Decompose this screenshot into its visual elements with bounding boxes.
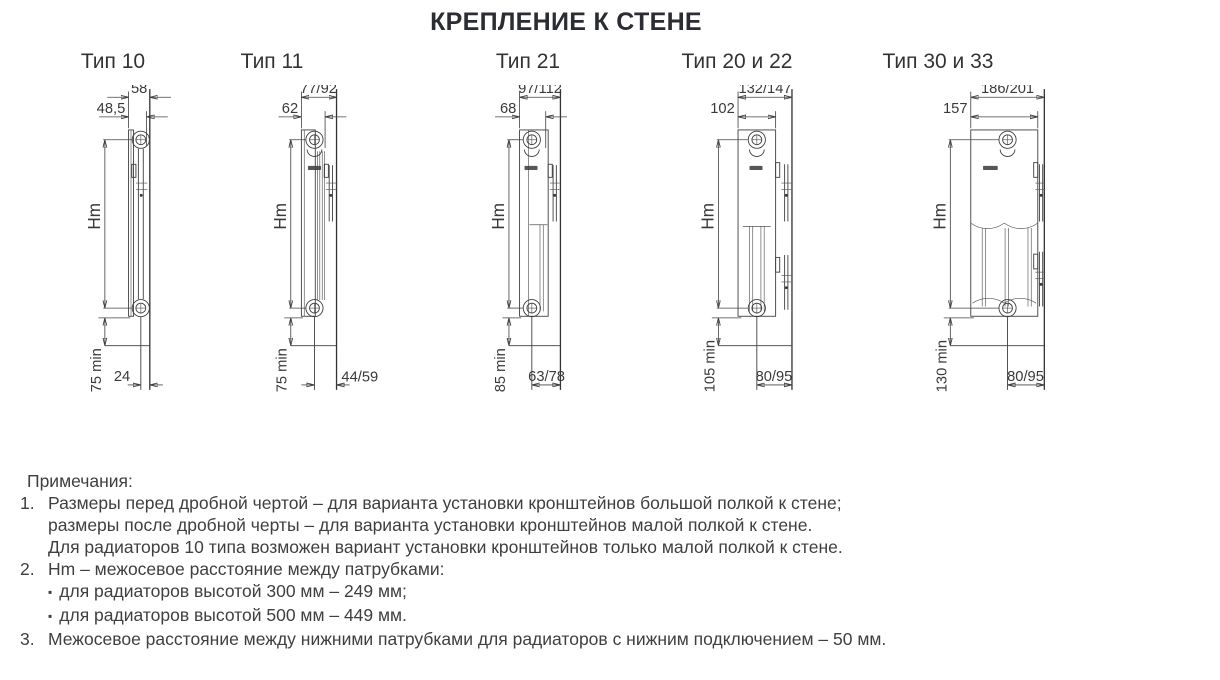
dim-axis-spacing: Hm xyxy=(84,203,104,230)
notes-section: Примечания: 1. Размеры перед дробной чер… xyxy=(20,470,1212,650)
diagram-tip3033: 186/201 157 Hm 130 min 80/95 xyxy=(890,85,1130,465)
note-number xyxy=(20,604,48,628)
dimensions: 97/112 68 Hm 85 min 63/78 xyxy=(488,85,567,392)
radiator xyxy=(738,130,791,390)
dim-pipe-to-wall: 63/78 xyxy=(528,369,565,385)
wall xyxy=(509,89,608,390)
mounting-diagram-page: КРЕПЛЕНИЕ К СТЕНЕ Тип 10 Тип 11 Тип 21 Т… xyxy=(0,0,1220,680)
dim-depth-to-wall: 58 xyxy=(131,85,147,97)
diagram-title-tip21: Тип 21 xyxy=(428,50,628,74)
dimensions: 132/147 102 Hm 105 min 80/95 xyxy=(698,85,793,392)
brand-logo xyxy=(308,166,321,170)
dim-depth-to-wall: 186/201 xyxy=(981,85,1034,97)
dim-floor-clearance: 75 min xyxy=(89,348,105,392)
diagram-title-tip2022: Тип 20 и 22 xyxy=(637,50,837,74)
diagram-tip10: 58 48,5 Hm 75 min 24 xyxy=(40,85,240,465)
wall xyxy=(105,89,197,390)
diagram-tip11: 77/92 62 Hm 75 min 44/59 xyxy=(230,85,430,465)
note-text: Размеры перед дробной чертой – для вариа… xyxy=(48,492,1212,514)
bullet-text: для радиаторов высотой 500 мм – 449 мм. xyxy=(59,605,407,625)
dim-pipe-to-wall: 80/95 xyxy=(756,369,793,385)
diagram-title-tip3033: Тип 30 и 33 xyxy=(838,50,1038,74)
dim-bracket-depth: 68 xyxy=(500,101,516,117)
dimensions: 58 48,5 Hm 75 min 24 xyxy=(84,85,171,392)
note-item-2: 2. Hm – межосевое расстояние между патру… xyxy=(20,558,1212,580)
diagram-title-tip11: Тип 11 xyxy=(172,50,372,74)
radiator xyxy=(129,130,150,390)
notes-header: Примечания: xyxy=(20,470,1212,492)
page-title: КРЕПЛЕНИЕ К СТЕНЕ xyxy=(0,8,1132,37)
note-item-1-line-1: 1. Размеры перед дробной чертой – для ва… xyxy=(20,492,1212,514)
dim-depth-to-wall: 132/147 xyxy=(738,85,791,97)
diagram-tip21: 97/112 68 Hm 85 min 63/78 xyxy=(440,85,640,465)
diagram-tip2022: 132/147 102 Hm 105 min 80/95 xyxy=(650,85,880,465)
dim-pipe-to-wall: 80/95 xyxy=(1007,369,1044,385)
dim-axis-spacing: Hm xyxy=(929,203,949,230)
dim-pipe-to-wall: 44/59 xyxy=(341,370,378,386)
brand-logo xyxy=(524,166,537,170)
note-item-3: 3. Межосевое расстояние между нижними па… xyxy=(20,628,1212,650)
bullet-icon: ▪ xyxy=(48,585,52,599)
dim-bracket-depth: 48,5 xyxy=(97,101,126,117)
radiator xyxy=(520,130,560,390)
dim-depth-to-wall: 97/112 xyxy=(518,85,562,97)
radiator xyxy=(971,130,1045,390)
wall xyxy=(291,89,384,390)
dim-axis-spacing: Hm xyxy=(698,203,718,230)
dim-axis-spacing: Hm xyxy=(488,203,508,230)
note-number: 2. xyxy=(20,558,48,580)
brand-logo xyxy=(749,166,762,170)
radiator xyxy=(301,130,337,390)
bullet-text: для радиаторов высотой 300 мм – 249 мм; xyxy=(59,581,407,601)
note-text: Hm – межосевое расстояние между патрубка… xyxy=(48,558,1212,580)
note-text: Межосевое расстояние между нижними патру… xyxy=(48,628,1212,650)
dim-depth-to-wall: 77/92 xyxy=(300,85,337,97)
note-text: ▪для радиаторов высотой 300 мм – 249 мм; xyxy=(48,580,1212,604)
note-number xyxy=(20,580,48,604)
dim-floor-clearance: 130 min xyxy=(934,340,950,392)
dim-pipe-to-wall: 24 xyxy=(114,369,130,385)
dim-floor-clearance: 85 min xyxy=(493,348,509,392)
note-item-2-bullet-2: ▪для радиаторов высотой 500 мм – 449 мм. xyxy=(20,604,1212,628)
wall xyxy=(718,89,842,390)
note-text: Для радиаторов 10 типа возможен вариант … xyxy=(48,536,1212,558)
note-item-2-bullet-1: ▪для радиаторов высотой 300 мм – 249 мм; xyxy=(20,580,1212,604)
note-number: 1. xyxy=(20,492,48,514)
bullet-icon: ▪ xyxy=(48,609,52,623)
brand-logo xyxy=(983,166,998,170)
note-text: ▪для радиаторов высотой 500 мм – 449 мм. xyxy=(48,604,1212,628)
note-number: 3. xyxy=(20,628,48,650)
note-number xyxy=(20,536,48,558)
dimensions: 77/92 62 Hm 75 min 44/59 xyxy=(270,85,378,392)
note-item-1-line-3: Для радиаторов 10 типа возможен вариант … xyxy=(20,536,1212,558)
dim-bracket-depth: 102 xyxy=(710,101,735,117)
dim-bracket-depth: 157 xyxy=(943,101,968,117)
wall xyxy=(950,89,1093,390)
dim-floor-clearance: 75 min xyxy=(275,348,291,392)
note-number xyxy=(20,514,48,536)
dimensions: 186/201 157 Hm 130 min 80/95 xyxy=(929,85,1044,392)
note-item-1-line-2: размеры после дробной черты – для вариан… xyxy=(20,514,1212,536)
dim-bracket-depth: 62 xyxy=(282,101,298,117)
dim-floor-clearance: 105 min xyxy=(702,340,718,392)
dim-axis-spacing: Hm xyxy=(270,203,290,230)
note-text: размеры после дробной черты – для вариан… xyxy=(48,514,1212,536)
